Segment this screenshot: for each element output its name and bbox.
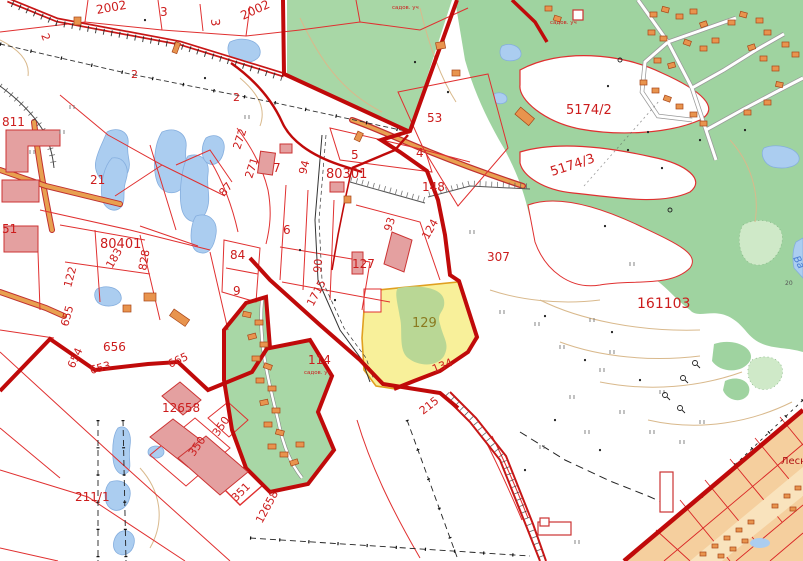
map-label: 129 <box>412 316 437 331</box>
map-label: 211/1 <box>75 490 110 504</box>
map-label: садов. уч <box>304 370 331 376</box>
map-label: 811 <box>2 115 25 129</box>
map-label: 9 <box>233 284 241 298</box>
map-label: 6 <box>283 223 291 237</box>
map-label: 4 <box>416 146 424 160</box>
cadastral-map-canvas[interactable]: 2002332002222811212722718751804011838281… <box>0 0 803 561</box>
map-label: 5 <box>351 148 359 162</box>
map-viewport[interactable]: 2002332002222811212722718751804011838281… <box>0 0 803 561</box>
map-label: 84 <box>230 248 245 262</box>
map-label: 215 <box>417 394 442 417</box>
parcel-129-notch <box>364 289 381 312</box>
map-label: 12658 <box>253 488 281 525</box>
map-label: 93 <box>381 216 398 233</box>
map-label: 2 <box>38 32 53 43</box>
map-label: 114 <box>308 353 331 367</box>
forest-tongue-2 <box>723 379 749 401</box>
map-label: 655 <box>58 304 76 328</box>
map-label: 271 <box>242 156 261 180</box>
map-label: 272 <box>230 127 249 151</box>
map-label: 1715 <box>304 278 329 309</box>
map-label: 90 <box>311 258 325 273</box>
map-label: 828 <box>136 249 152 272</box>
map-label: 124 <box>419 217 441 242</box>
garden-area-bottom-left <box>224 297 334 492</box>
map-label: садов. уч <box>550 20 577 26</box>
village-pond <box>750 538 770 548</box>
map-label: 5174/2 <box>566 103 612 118</box>
map-label: 656 <box>103 340 126 354</box>
map-label: 2 <box>233 91 240 104</box>
map-label: 307 <box>487 250 510 264</box>
map-label: 12658 <box>162 401 200 415</box>
map-label: 20 <box>785 280 793 287</box>
map-label: 127 <box>352 257 375 271</box>
map-label: 80401 <box>100 237 141 252</box>
map-label: 2002 <box>95 0 128 17</box>
map-label: 3 <box>208 18 223 27</box>
map-label: 2002 <box>238 0 272 23</box>
forest-tongue-1 <box>712 342 751 371</box>
map-label: садов. уч <box>392 5 419 11</box>
lightgreen-patch-2 <box>748 357 783 390</box>
map-label: 94 <box>296 159 312 176</box>
map-label: 53 <box>427 111 442 125</box>
map-label: 653 <box>88 359 112 377</box>
map-label: 2 <box>131 68 138 81</box>
map-label: 7 <box>273 161 281 175</box>
map-label: 87 <box>216 180 235 199</box>
map-label: Лесн <box>781 456 803 467</box>
map-label: 80301 <box>326 167 367 182</box>
map-label: 161103 <box>637 296 690 312</box>
map-label: 3 <box>160 5 168 19</box>
map-label: 122 <box>61 265 79 289</box>
selected-parcel-129[interactable] <box>362 282 478 389</box>
map-label: 21 <box>90 173 105 187</box>
map-label: 148 <box>422 180 445 194</box>
map-label: 51 <box>2 222 17 236</box>
